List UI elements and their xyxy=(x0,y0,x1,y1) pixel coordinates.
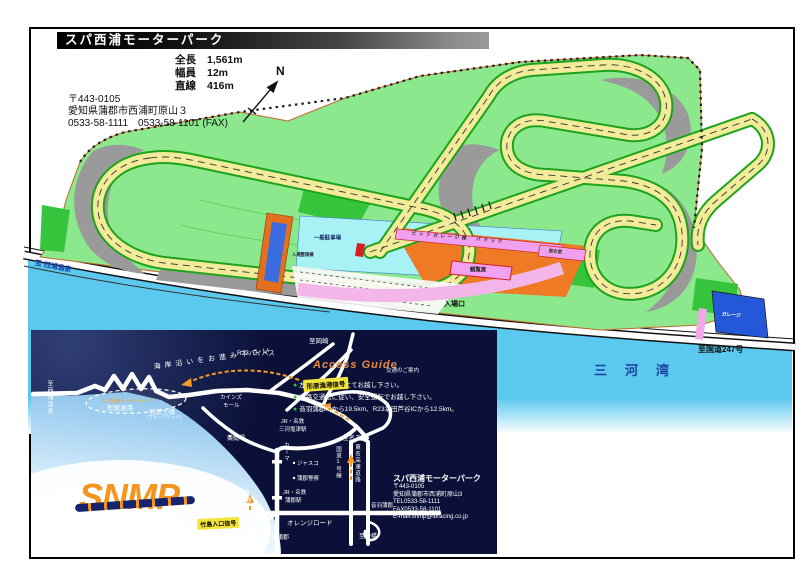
cainz-mall-label-1: カインズ xyxy=(220,393,242,401)
spec-label: 幅員 xyxy=(175,67,207,80)
page-title: スパ西浦モーターパーク xyxy=(57,32,489,49)
spec-label: 全長 xyxy=(175,54,207,67)
spec-value: 12m xyxy=(207,67,228,80)
bullet-icon: ● xyxy=(293,406,297,413)
contact-name: スパ西浦モーターパーク xyxy=(393,474,481,484)
phone-numbers: 0533-58-1111 0533-58-1101 (FAX) xyxy=(68,118,228,130)
jusco-label: ジャスコ xyxy=(297,459,319,467)
police-label: 蒲郡警察 xyxy=(297,474,319,482)
general-parking-label: 一般駐車場 xyxy=(314,233,341,241)
otowa-ic-label-2: インター xyxy=(374,509,396,517)
postal-code: 〒443-0105 xyxy=(68,94,228,106)
locker-room-label: 更衣室 xyxy=(548,247,562,255)
sea-label: 三河湾 xyxy=(594,360,687,379)
contact-postal: 〒443-0105 xyxy=(393,484,481,492)
guide-bullet-text: 道路交通法に従い、安全運転でお越し下さい。 xyxy=(299,394,436,401)
contact-fax: FAX0533-58-1101 xyxy=(393,507,481,515)
guide-bullet-text: 音羽蒲郡ICから19.5km、R23幸田芦谷ICから12.5km。 xyxy=(299,406,458,413)
jr-meitetsu-label-2: JR・名鉄 xyxy=(283,488,306,496)
stand-label: 観覧席 xyxy=(470,265,486,273)
shiotsu-station-label: 三河塩津駅 xyxy=(279,425,307,433)
street-address: 愛知県蒲郡市西浦町原山３ xyxy=(68,106,228,118)
to-okazaki-label: 至岡崎 xyxy=(309,335,329,345)
kahma-label: カーマ xyxy=(282,442,290,462)
takeshima-aquarium-label-1: 竹島 xyxy=(239,488,250,496)
access-map: Access Guide 交通のご案内 ●左図基本ルートにてお越し下さい。 ●道… xyxy=(31,330,497,554)
guide-bullet: ●道路交通法に従い、安全運転でお越し下さい。 xyxy=(293,391,436,401)
to-gamagori-label: 至蒲郡 xyxy=(271,532,289,541)
cainz-mall-label-2: モール xyxy=(223,401,240,409)
to-toyohashi-label: 至豊橋 xyxy=(359,531,377,540)
orange-road-label: オレンジロード xyxy=(287,517,333,527)
boat-race-label: 競艇場 xyxy=(227,433,245,442)
contact-block: スパ西浦モーターパーク 〒443-0105 愛知県蒲郡市西浦町原山3 TEL05… xyxy=(393,474,481,522)
to-nishiura-onsen-vertical-label: 至西浦温泉 xyxy=(45,380,54,415)
destination-label: スパ西浦モーターパーク xyxy=(91,397,163,404)
access-guide-subtitle: 交通のご案内 xyxy=(386,366,419,374)
katahara-bridge-sub-label: (ブルーブリッジ) xyxy=(147,414,181,420)
entrance-gate-label: 入場口 xyxy=(444,299,465,309)
flyer-page: スパ西浦モーターパーク 全長1,561m 幅員12m 直線416m 〒443-0… xyxy=(0,0,808,569)
garage-label: ガレージ xyxy=(721,310,741,319)
bullet-icon: ● xyxy=(293,382,297,389)
route1-label: 国道1号線 xyxy=(334,446,342,479)
tomei-expressway-label: 東名高速道路 xyxy=(353,444,361,483)
contact-address: 愛知県蒲郡市西浦町原山3 xyxy=(393,492,481,500)
bullet-icon: ● xyxy=(293,394,297,401)
spec-label: 直線 xyxy=(175,80,207,93)
otowa-ic-label-1: 音羽蒲郡 xyxy=(371,501,393,509)
track-specs: 全長1,561m 幅員12m 直線416m xyxy=(175,54,243,93)
contact-tel: TEL0533-58-1111 xyxy=(393,499,481,507)
compass-n-label: N xyxy=(276,64,285,78)
guide-bullet: ●音羽蒲郡ICから19.5km、R23幸田芦谷ICから12.5km。 xyxy=(293,403,458,413)
address-block: 〒443-0105 愛知県蒲郡市西浦町原山３ 0533-58-1111 0533… xyxy=(68,94,228,130)
takeshima-label: 竹島 xyxy=(207,497,229,505)
takeshima-aquarium-label-2: 水族館 xyxy=(235,496,252,504)
spec-value: 416m xyxy=(207,80,234,93)
spec-value: 1,561m xyxy=(207,54,243,67)
entrance-building-label: 入場整理棟 xyxy=(292,251,314,257)
contact-email: E-mail:snmp@ibracing.co.jp xyxy=(393,514,481,522)
to-nagoya-label: 至名古屋 xyxy=(343,433,367,442)
jr-meitetsu-label-1: JR・名鉄 xyxy=(281,417,304,425)
gamagori-station-label: 蒲郡駅 xyxy=(285,496,302,504)
to-route247-label: 至国道247号 xyxy=(698,344,743,355)
takeshima-signal-badge: 竹島入口信号 xyxy=(197,517,240,530)
